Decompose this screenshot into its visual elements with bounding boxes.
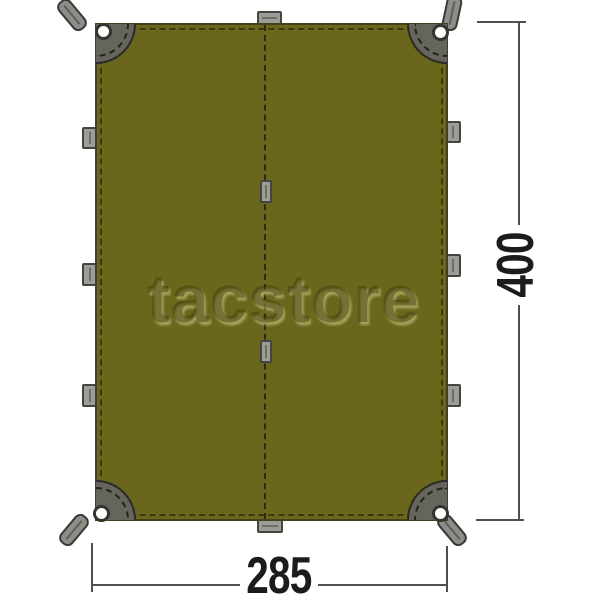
- height-dimension-label: 400: [480, 224, 552, 306]
- height-dimension-tick-bottom: [476, 519, 524, 521]
- grommet-icon: [432, 505, 449, 522]
- width-dimension-label: 285: [238, 552, 320, 600]
- height-dimension-line: [518, 21, 520, 225]
- tab-slit: [89, 389, 91, 402]
- strap-fold-line: [66, 520, 83, 540]
- strap-fold-line: [444, 520, 461, 540]
- attachment-tab-icon: [260, 340, 272, 363]
- tab-slit: [265, 345, 267, 358]
- strap-fold-line: [449, 1, 456, 25]
- strap-fold-line: [64, 5, 81, 25]
- corner-strap-icon: [54, 0, 89, 34]
- tab-slit: [265, 185, 267, 198]
- width-dimension-tick-right: [446, 546, 448, 592]
- corner-strap-icon: [56, 511, 91, 549]
- tab-slit: [262, 17, 277, 19]
- width-dimension-line: [92, 584, 240, 586]
- height-dimension-line: [518, 305, 520, 521]
- tarp-body: tacstore: [95, 23, 448, 521]
- width-dimension-line: [318, 584, 448, 586]
- attachment-tab-icon: [260, 180, 272, 203]
- tab-slit: [89, 268, 91, 281]
- tab-slit: [452, 259, 454, 272]
- tab-slit: [262, 525, 278, 527]
- tab-slit: [452, 389, 454, 402]
- grommet-icon: [93, 505, 110, 522]
- tab-slit: [89, 132, 91, 144]
- tab-slit: [452, 126, 454, 138]
- grommet-icon: [432, 24, 449, 41]
- grommet-icon: [95, 23, 112, 40]
- product-diagram: tacstore 400 285: [0, 0, 600, 600]
- watermark: tacstore: [147, 265, 420, 333]
